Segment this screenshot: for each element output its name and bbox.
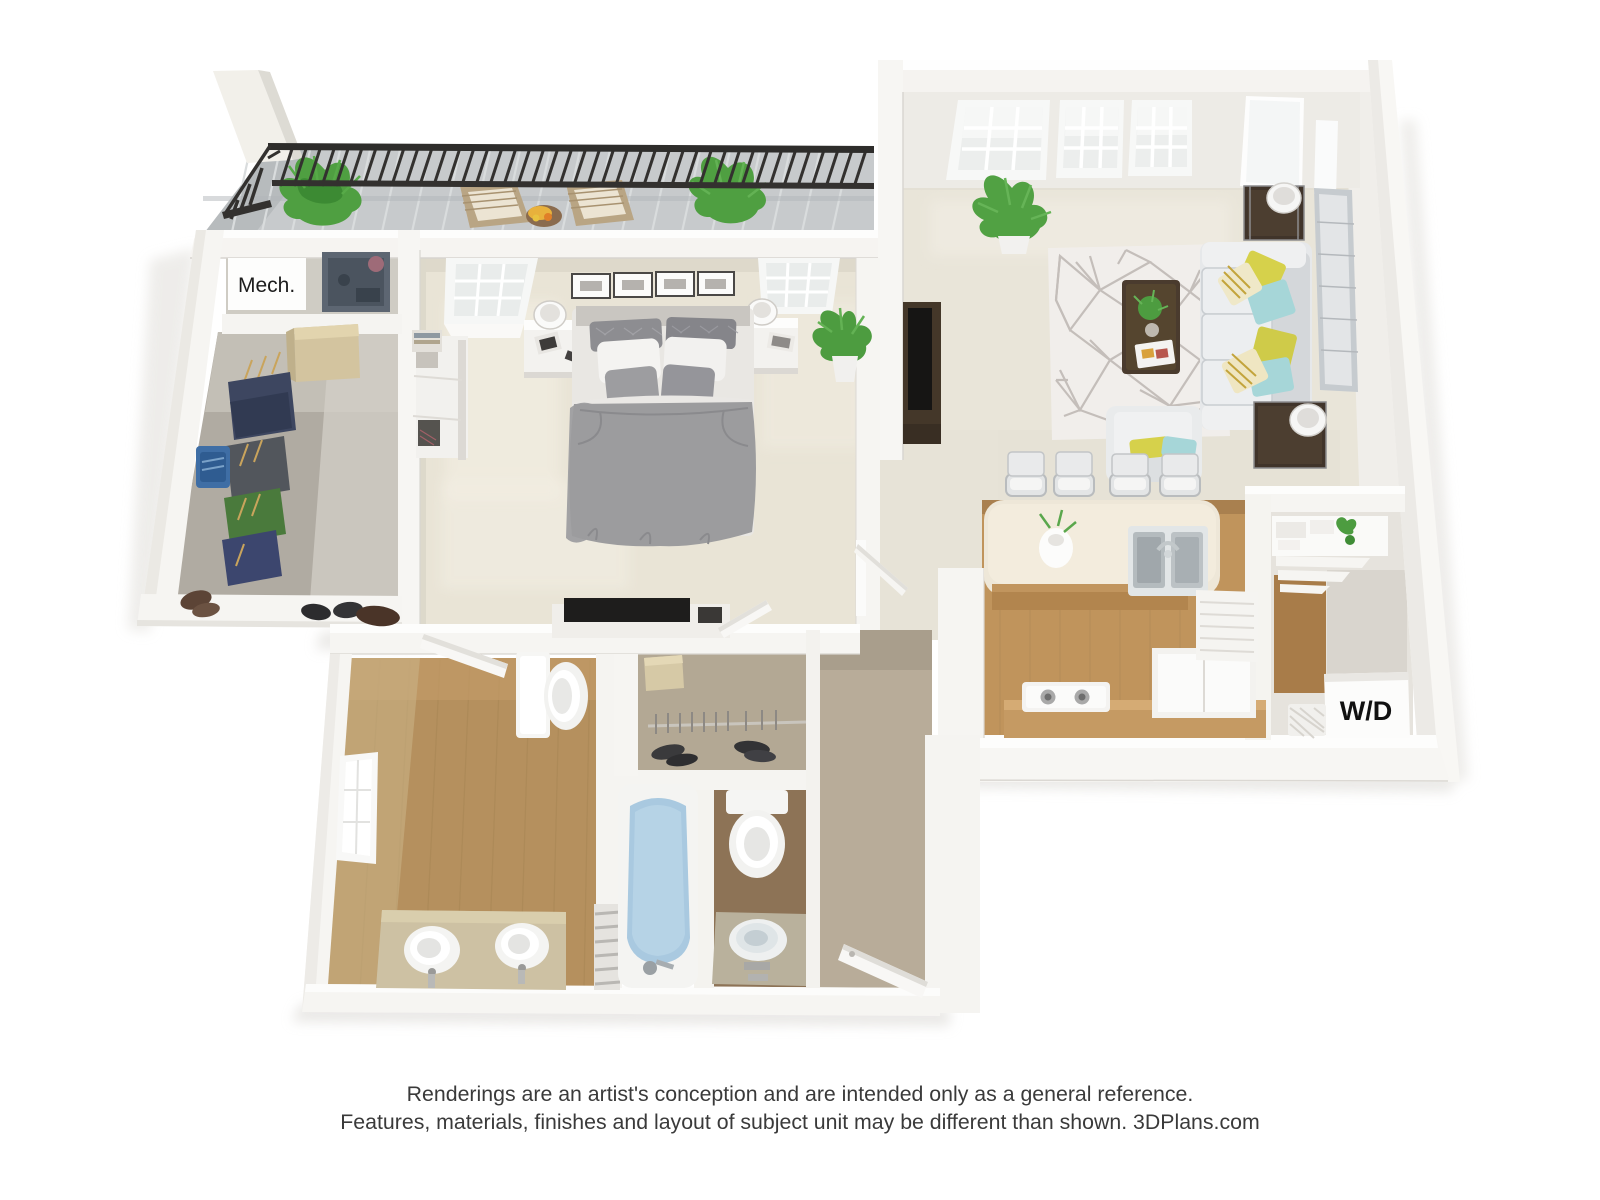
svg-text:Mech.: Mech. (238, 274, 295, 297)
svg-text:W/D: W/D (1340, 696, 1392, 726)
